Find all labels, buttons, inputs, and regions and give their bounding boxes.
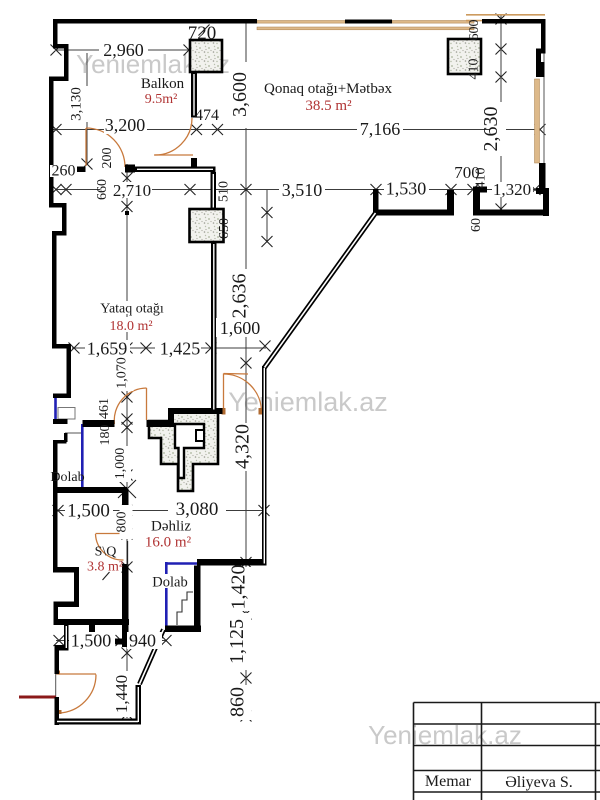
svg-text:S\Q: S\Q	[95, 545, 117, 560]
svg-text:18.0 m²: 18.0 m²	[109, 319, 152, 334]
svg-text:940: 940	[129, 631, 156, 651]
svg-text:9.5m²: 9.5m²	[145, 92, 178, 107]
svg-text:1,000: 1,000	[113, 448, 128, 480]
svg-text:600: 600	[467, 20, 482, 41]
svg-text:3,600: 3,600	[229, 72, 251, 117]
svg-text:1,530: 1,530	[386, 179, 427, 199]
svg-text:38.5 m²: 38.5 m²	[305, 98, 352, 114]
svg-text:7,166: 7,166	[360, 119, 401, 139]
svg-text:1,600: 1,600	[220, 318, 261, 338]
svg-text:474: 474	[195, 107, 219, 124]
svg-text:1,659: 1,659	[87, 339, 128, 359]
svg-text:1,125: 1,125	[226, 619, 248, 664]
svg-text:Qonaq otağı+Mətbəx: Qonaq otağı+Mətbəx	[264, 81, 393, 97]
svg-text:Yataq otağı: Yataq otağı	[100, 302, 164, 317]
svg-text:16.0 m²: 16.0 m²	[145, 535, 192, 551]
svg-text:2,636: 2,636	[229, 274, 251, 319]
svg-text:60: 60	[469, 218, 484, 232]
svg-text:Dəhliz: Dəhliz	[151, 519, 191, 535]
svg-text:720: 720	[188, 23, 217, 44]
svg-text:Əliyeva S.: Əliyeva S.	[505, 774, 573, 791]
svg-text:2,630: 2,630	[480, 107, 502, 152]
svg-text:1,500: 1,500	[67, 501, 110, 522]
svg-text:3,130: 3,130	[69, 87, 85, 121]
svg-text:Dolab: Dolab	[152, 575, 187, 591]
svg-text:1,500: 1,500	[71, 631, 112, 651]
svg-text:2,710: 2,710	[113, 181, 151, 200]
svg-text:3,080: 3,080	[176, 499, 219, 520]
svg-text:860: 860	[227, 687, 249, 717]
svg-text:Memar: Memar	[425, 773, 472, 790]
svg-text:800: 800	[115, 512, 130, 533]
svg-text:1,440: 1,440	[112, 675, 131, 713]
svg-text:3,200: 3,200	[105, 115, 146, 135]
svg-text:Yeniemlak.az: Yeniemlak.az	[228, 387, 388, 417]
svg-text:180: 180	[98, 425, 113, 446]
svg-text:510: 510	[217, 181, 232, 202]
svg-text:260: 260	[52, 163, 76, 180]
svg-text:2,960: 2,960	[103, 40, 144, 60]
svg-text:660: 660	[95, 179, 110, 200]
svg-text:1,070: 1,070	[115, 357, 130, 389]
svg-text:410: 410	[474, 168, 489, 189]
svg-text:1,420: 1,420	[228, 565, 250, 610]
svg-text:1,425: 1,425	[160, 339, 201, 359]
svg-text:3,510: 3,510	[282, 180, 323, 200]
svg-text:200: 200	[100, 148, 115, 169]
svg-text:Balkon: Balkon	[141, 76, 185, 92]
svg-text:4,320: 4,320	[232, 424, 254, 469]
svg-text:1,320: 1,320	[493, 180, 531, 199]
svg-text:Dolab: Dolab	[50, 470, 84, 485]
svg-text:410: 410	[467, 59, 482, 80]
svg-text:650: 650	[217, 218, 232, 239]
svg-text:461: 461	[97, 398, 112, 419]
svg-text:3.8 m²: 3.8 m²	[87, 560, 123, 575]
